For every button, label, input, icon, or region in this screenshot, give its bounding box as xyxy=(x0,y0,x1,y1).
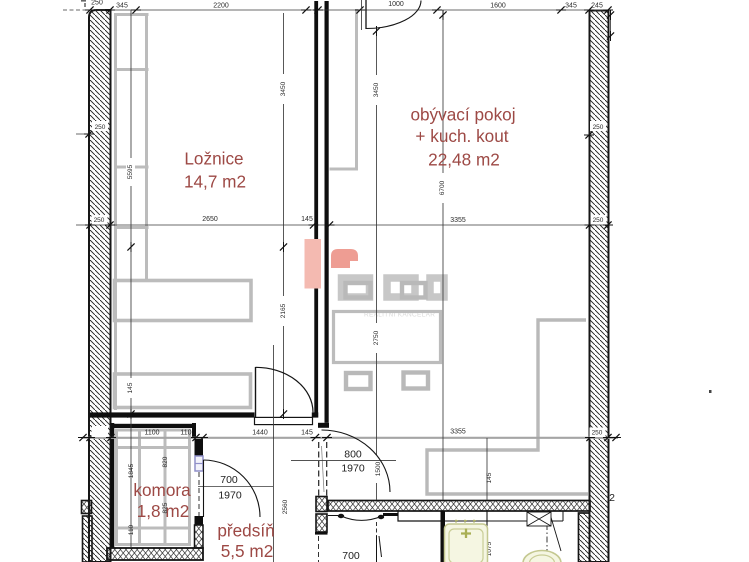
svg-text:1440: 1440 xyxy=(252,430,268,437)
svg-text:800: 800 xyxy=(344,449,362,461)
svg-text:2750: 2750 xyxy=(373,330,380,345)
svg-text:předsíň: předsíň xyxy=(217,521,274,541)
svg-text:250: 250 xyxy=(94,217,105,224)
svg-text:6700: 6700 xyxy=(439,180,446,195)
svg-text:250: 250 xyxy=(592,430,603,437)
svg-text:700: 700 xyxy=(342,550,360,562)
svg-text:145: 145 xyxy=(486,472,493,483)
svg-text:2: 2 xyxy=(609,492,615,504)
svg-text:2165: 2165 xyxy=(280,303,287,318)
svg-text:250: 250 xyxy=(91,0,103,7)
svg-text:22,48 m2: 22,48 m2 xyxy=(428,150,500,170)
svg-text:345: 345 xyxy=(565,3,577,10)
svg-text:obývací pokoj: obývací pokoj xyxy=(410,105,515,125)
svg-text:5,5 m2: 5,5 m2 xyxy=(221,541,274,561)
svg-text:825: 825 xyxy=(162,502,169,513)
svg-text:komora: komora xyxy=(133,480,191,500)
svg-text:1500: 1500 xyxy=(375,461,382,476)
svg-text:345: 345 xyxy=(116,3,128,10)
svg-text:2650: 2650 xyxy=(202,216,218,223)
svg-text:145: 145 xyxy=(301,216,313,223)
svg-text:1600: 1600 xyxy=(490,3,506,10)
svg-text:2200: 2200 xyxy=(213,3,229,10)
svg-text:110: 110 xyxy=(128,524,135,535)
svg-text:2560: 2560 xyxy=(282,499,289,514)
svg-text:1000: 1000 xyxy=(388,1,404,8)
svg-text:1845: 1845 xyxy=(128,463,135,478)
svg-text:250: 250 xyxy=(95,124,106,131)
svg-text:3355: 3355 xyxy=(450,217,466,224)
svg-text:3450: 3450 xyxy=(373,82,380,97)
svg-text:245: 245 xyxy=(591,3,603,10)
svg-text:1100: 1100 xyxy=(144,430,159,437)
svg-text:3450: 3450 xyxy=(280,81,287,96)
svg-text:250: 250 xyxy=(593,217,604,224)
svg-text:110: 110 xyxy=(180,430,191,437)
svg-text:250: 250 xyxy=(593,124,604,131)
svg-text:3355: 3355 xyxy=(450,429,466,436)
svg-text:145: 145 xyxy=(301,430,313,437)
svg-text:145: 145 xyxy=(127,382,134,393)
svg-text:700: 700 xyxy=(220,474,238,486)
svg-text:1970: 1970 xyxy=(218,490,242,502)
svg-text:1970: 1970 xyxy=(341,463,365,475)
svg-text:820: 820 xyxy=(162,456,169,467)
svg-text:5595: 5595 xyxy=(127,164,134,179)
svg-text:Ložnice: Ložnice xyxy=(184,149,243,169)
svg-text:14,7 m2: 14,7 m2 xyxy=(184,172,246,192)
svg-text:+ kuch. kout: + kuch. kout xyxy=(415,126,508,146)
